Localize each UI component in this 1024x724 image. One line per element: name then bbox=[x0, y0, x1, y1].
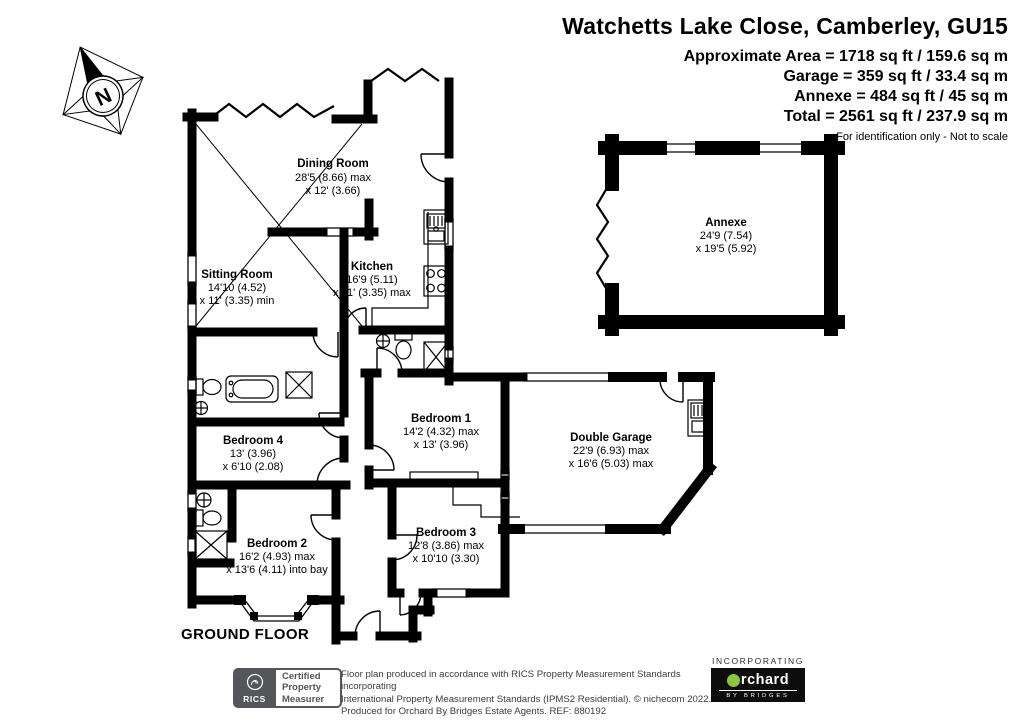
bedroom1-dim1: 14'2 (4.32) max bbox=[403, 426, 480, 438]
sitting-room-dim2: x 11' (3.35) min bbox=[200, 295, 275, 307]
bedroom4-dim1: 13' (3.96) bbox=[230, 448, 276, 460]
badge-line: Certified bbox=[282, 671, 340, 682]
orchard-subtitle: BY BRIDGES bbox=[719, 690, 797, 699]
certified-property-measurer: Certified Property Measurer bbox=[276, 668, 342, 708]
folding-doors bbox=[212, 69, 608, 290]
boiler-icon bbox=[688, 400, 712, 436]
rics-label: RICS bbox=[243, 694, 266, 704]
kitchen-dim2: x 11' (3.35) max bbox=[333, 287, 411, 299]
badge-line: Measurer bbox=[282, 694, 340, 705]
bedroom4-name: Bedroom 4 bbox=[223, 435, 284, 447]
bathtub-icon bbox=[226, 376, 278, 402]
toilet-icon bbox=[196, 379, 221, 395]
basin-icon bbox=[195, 402, 208, 415]
rics-lion-icon bbox=[244, 673, 266, 693]
bedroom1-dim2: x 13' (3.96) bbox=[414, 439, 469, 451]
footer-disclaimer: Floor plan produced in accordance with R… bbox=[341, 669, 721, 719]
orchard-name: rchard bbox=[741, 672, 789, 688]
garage-name: Double Garage bbox=[570, 432, 652, 444]
badge-line: Property bbox=[282, 682, 340, 693]
footer-line-3: Produced for Orchard By Bridges Estate A… bbox=[341, 706, 721, 718]
shower-icon bbox=[286, 372, 312, 398]
dining-room-dim1: 28'5 (8.66) max bbox=[295, 172, 372, 184]
annexe-dim2: x 19'5 (5.92) bbox=[696, 243, 757, 255]
bay-window bbox=[234, 595, 319, 621]
garage-dim1: 22'9 (6.93) max bbox=[573, 445, 650, 457]
orchard-brand: INCORPORATING rchard BY BRIDGES bbox=[711, 656, 805, 702]
incorporating-label: INCORPORATING bbox=[711, 656, 805, 666]
basin-icon bbox=[197, 493, 211, 507]
bedroom2-name: Bedroom 2 bbox=[247, 538, 307, 550]
dining-room-name: Dining Room bbox=[297, 158, 369, 170]
bedroom3-recess bbox=[453, 487, 520, 517]
floorplan-drawing: N bbox=[0, 0, 1024, 724]
rics-certified-badge: RICS Certified Property Measurer bbox=[233, 668, 342, 708]
annexe-folding-door bbox=[597, 188, 608, 290]
floorplan-page: Watchetts Lake Close, Camberley, GU15 Ap… bbox=[0, 0, 1024, 724]
bedroom3-dim2: x 10'10 (3.30) bbox=[413, 553, 480, 565]
bathroom-fixtures bbox=[195, 372, 313, 415]
compass-rose: N bbox=[40, 28, 160, 152]
sitting-room-name: Sitting Room bbox=[201, 269, 273, 281]
dining-room-dim2: x 12' (3.66) bbox=[306, 185, 361, 197]
top-folding-door bbox=[371, 69, 439, 81]
orchard-logo: rchard BY BRIDGES bbox=[711, 668, 805, 702]
footer-line-1: Floor plan produced in accordance with R… bbox=[341, 669, 721, 694]
ensuite-fixtures bbox=[195, 493, 227, 559]
annexe-name: Annexe bbox=[705, 217, 747, 229]
bedroom1-name: Bedroom 1 bbox=[411, 413, 472, 425]
orchard-o-icon bbox=[727, 674, 740, 687]
garage-dim2: x 16'6 (5.03) max bbox=[569, 458, 654, 470]
bedroom4-dim2: x 6'10 (2.08) bbox=[223, 461, 284, 473]
bedroom3-name: Bedroom 3 bbox=[416, 527, 476, 539]
rics-logo: RICS bbox=[233, 668, 276, 708]
dining-folding-door bbox=[212, 104, 334, 117]
toilet-icon bbox=[196, 510, 221, 526]
annexe-dim1: 24'9 (7.54) bbox=[700, 230, 752, 242]
shower-icon bbox=[195, 531, 227, 559]
footer-line-2: International Property Measurement Stand… bbox=[341, 694, 721, 706]
floor-label: GROUND FLOOR bbox=[181, 626, 309, 643]
bedroom3-dim1: 12'8 (3.86) max bbox=[408, 540, 485, 552]
kitchen-dim1: 16'9 (5.11) bbox=[346, 274, 397, 286]
kitchen-name: Kitchen bbox=[351, 261, 393, 273]
sitting-room-dim1: 14'10 (4.52) bbox=[208, 282, 266, 294]
bedroom2-dim2: x 13'6 (4.11) into bay bbox=[226, 564, 328, 576]
toilet-icon bbox=[395, 333, 412, 359]
shower-room-fixtures bbox=[377, 333, 449, 372]
basin-icon bbox=[377, 335, 390, 348]
bedroom2-dim1: 16'2 (4.93) max bbox=[239, 551, 316, 563]
